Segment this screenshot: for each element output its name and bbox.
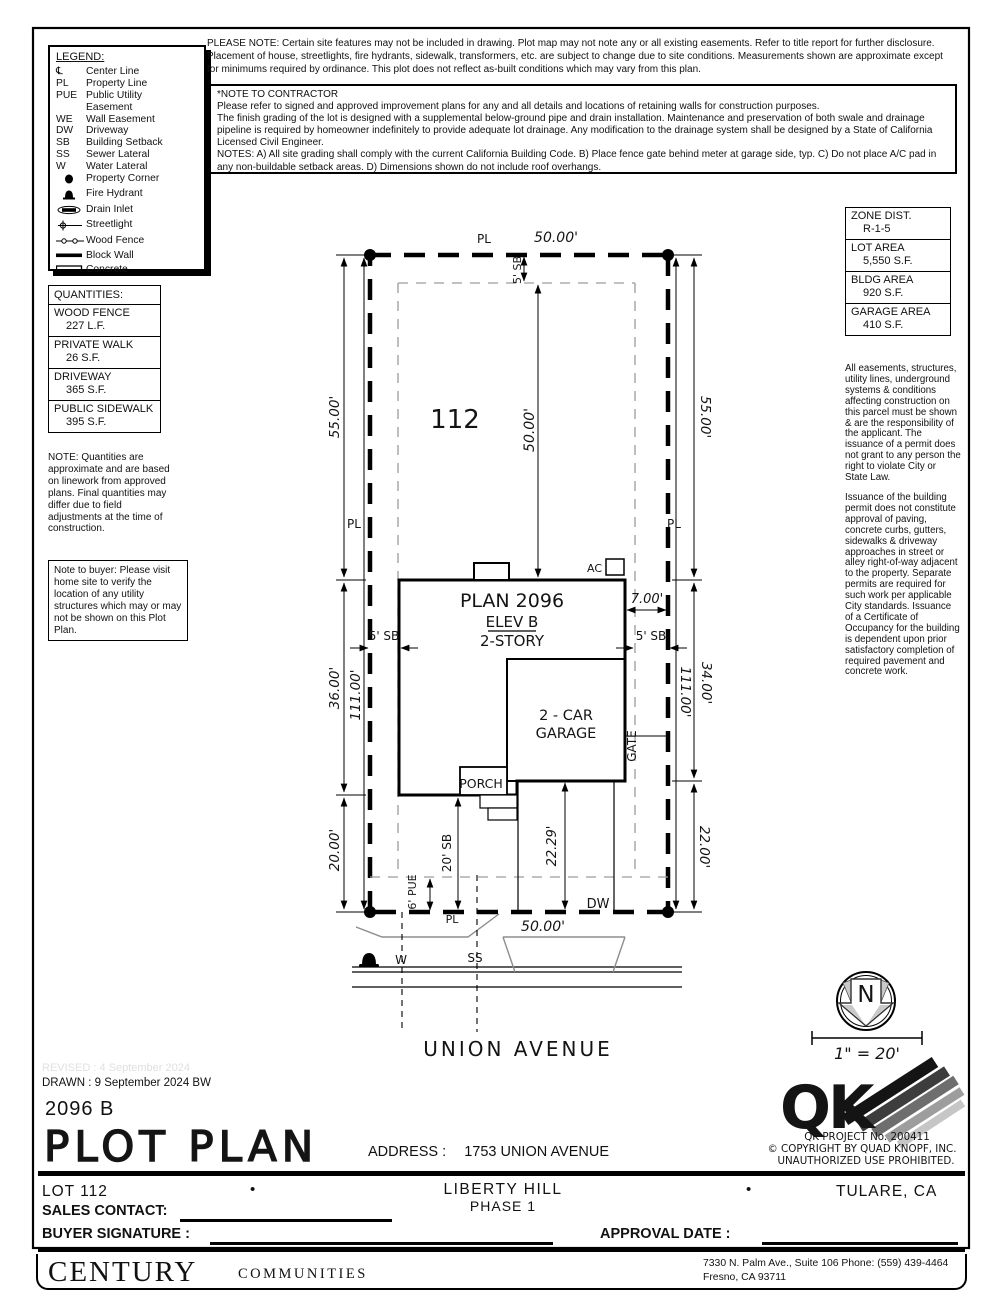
- concrete-icon: [56, 264, 86, 280]
- legend-item-wall-easement: WEWall Easement: [56, 114, 198, 126]
- bullet-separator: •: [250, 1181, 255, 1198]
- legend-item-pue: PUEPublic Utility Easement: [56, 90, 198, 114]
- dim-garage-side: 7.00': [631, 592, 664, 607]
- bullet-separator: •: [746, 1181, 751, 1198]
- centerline-symbol: ℄: [56, 66, 86, 78]
- streetlight-icon: [56, 219, 86, 235]
- dim-left-36: 36.00': [327, 667, 343, 709]
- dim-front-setback: 5' SB: [511, 256, 524, 284]
- community-name: LIBERTY HILL: [418, 1181, 588, 1199]
- water-lateral-label: W: [395, 953, 407, 967]
- dim-right-55: 55.00': [697, 396, 713, 438]
- pl-label-top: PL: [477, 232, 491, 246]
- legend-item-driveway: DWDriveway: [56, 125, 198, 137]
- contractor-note-p1: Please refer to signed and approved impr…: [217, 101, 949, 113]
- sales-contact-line: [180, 1219, 392, 1222]
- garage-label-1: 2 - CAR: [539, 708, 593, 724]
- zone-dist-row: ZONE DIST. R-1-5: [846, 208, 950, 239]
- legend-box: LEGEND: ℄Center Line PLProperty Line PUE…: [48, 45, 206, 271]
- bldg-area-row: BLDG AREA 920 S.F.: [846, 271, 950, 303]
- lot-number: 112: [430, 405, 480, 435]
- legend-item-sewer: SSSewer Lateral: [56, 149, 198, 161]
- dim-drive-len: 22.29': [545, 826, 560, 867]
- qk-project-number: QK PROJECT No. 200411: [804, 1131, 930, 1143]
- dim-left-55: 55.00': [327, 396, 343, 438]
- dim-left-20: 20.00': [327, 829, 343, 871]
- contractor-note-p3: NOTES: A) All site grading shall comply …: [217, 149, 949, 173]
- legend-item-water: WWater Lateral: [56, 161, 198, 173]
- approval-date-label: APPROVAL DATE :: [600, 1226, 731, 1242]
- porch-label: PORCH: [459, 776, 503, 791]
- property-corner-icon: [56, 173, 86, 188]
- dim-sb-rear: 20' SB: [440, 834, 454, 872]
- dw-label: DW: [587, 897, 610, 912]
- house-stories-label: 2-STORY: [480, 632, 545, 650]
- legend-item-setback: SBBuilding Setback: [56, 137, 198, 149]
- fire-hydrant-icon: [359, 953, 379, 967]
- private-walk-row: PRIVATE WALK 26 S.F.: [49, 336, 160, 368]
- lot-label: LOT 112: [42, 1183, 108, 1201]
- driveway-edges: [518, 781, 614, 912]
- builder-name-suffix: COMMUNITIES: [238, 1266, 368, 1283]
- please-note-text: PLEASE NOTE: Certain site features may n…: [207, 38, 954, 77]
- legend-item-property-line: PLProperty Line: [56, 78, 198, 90]
- sewer-lateral-label: SS: [467, 951, 482, 965]
- legend-item-streetlight: Streetlight: [56, 219, 198, 235]
- scale-label: 1" = 20': [834, 1044, 900, 1063]
- dim-right-22: 22.00': [696, 826, 712, 868]
- legend-item-wood-fence: Wood Fence: [56, 235, 198, 250]
- revised-line: REVISED : 4 September 2024: [42, 1062, 190, 1074]
- house-elev-label: ELEV B: [486, 613, 539, 631]
- wood-fence-row: WOOD FENCE 227 L.F.: [49, 304, 160, 336]
- dim-bottom-width: 50.00': [521, 919, 565, 935]
- north-letter: N: [857, 982, 874, 1008]
- quantities-table: QUANTITIES: WOOD FENCE 227 L.F. PRIVATE …: [48, 285, 161, 433]
- builder-address-line2: Fresno, CA 93711: [703, 1271, 948, 1285]
- sheet-title: PLOT PLAN: [44, 1122, 318, 1171]
- legend-item-concrete: Concrete: [56, 264, 198, 280]
- garage-area-row: GARAGE AREA 410 S.F.: [846, 303, 950, 335]
- plan-code: 2096 B: [45, 1098, 114, 1121]
- pl-label-bottom: PL: [446, 913, 460, 926]
- public-sidewalk-row: PUBLIC SIDEWALK 395 S.F.: [49, 400, 160, 432]
- contractor-note-title: *NOTE TO CONTRACTOR: [217, 89, 949, 101]
- entry-step-1: [480, 795, 517, 808]
- legend-item-drain-inlet: Drain Inlet: [56, 204, 198, 219]
- qk-copyright: © COPYRIGHT BY QUAD KNOPF, INC.: [767, 1143, 956, 1155]
- legend-item-fire-hydrant: Fire Hydrant: [56, 188, 198, 204]
- dim-right-34: 34.00': [698, 662, 714, 704]
- dim-sb-right: 5' SB: [636, 629, 667, 643]
- contractor-note-p2: The finish grading of the lot is designe…: [217, 113, 949, 149]
- divider-rule-bottom: [38, 1247, 965, 1252]
- city-label: TULARE, CA: [836, 1183, 937, 1201]
- builder-address: 7330 N. Palm Ave., Suite 106 Phone: (559…: [703, 1257, 948, 1284]
- pl-label-left: PL: [347, 517, 361, 531]
- dim-pue-rear: 6' PUE: [406, 874, 419, 909]
- pl-label-right: PL: [667, 517, 681, 531]
- dim-left-total: 111.00': [348, 670, 364, 721]
- zoning-table: ZONE DIST. R-1-5 LOT AREA 5,550 S.F. BLD…: [845, 207, 951, 336]
- legend-item-property-corner: Property Corner: [56, 173, 198, 188]
- side-notes: All easements, structures, utility lines…: [845, 364, 961, 687]
- quantities-note: NOTE: Quantities are approximate and are…: [48, 452, 176, 535]
- scale-bar: [812, 1031, 922, 1045]
- drain-inlet-icon: [56, 204, 86, 219]
- drawn-line: DRAWN : 9 September 2024 BW: [42, 1077, 211, 1089]
- fire-hydrant-icon: [56, 188, 86, 204]
- dim-front-depth: 50.00': [522, 408, 538, 452]
- builder-address-line1: 7330 N. Palm Ave., Suite 106 Phone: (559…: [703, 1257, 948, 1271]
- buyer-signature-line: [210, 1242, 553, 1245]
- garage-label-2: GARAGE: [536, 726, 597, 742]
- contractor-note-box: *NOTE TO CONTRACTOR Please refer to sign…: [209, 84, 957, 174]
- approval-date-line: [762, 1242, 958, 1245]
- block-wall-icon: [56, 250, 86, 264]
- lot-area-row: LOT AREA 5,550 S.F.: [846, 239, 950, 271]
- north-arrow-icon: N: [837, 972, 895, 1030]
- address-line: ADDRESS : 1753 UNION AVENUE: [368, 1144, 609, 1160]
- builder-name: CENTURY: [48, 1256, 197, 1289]
- ac-label: AC: [587, 562, 602, 575]
- street-name: UNION AVENUE: [423, 1037, 613, 1061]
- house-plan-label: PLAN 2096: [460, 590, 564, 612]
- ac-pad: [606, 559, 624, 575]
- buyer-note-box: Note to buyer: Please visit home site to…: [48, 560, 188, 641]
- legend-item-centerline: ℄Center Line: [56, 66, 198, 78]
- address-label: ADDRESS :: [368, 1144, 446, 1160]
- entry-step-2: [488, 808, 517, 820]
- qk-prohibited: UNAUTHORIZED USE PROHIBITED.: [777, 1155, 954, 1167]
- divider-rule-top: [38, 1171, 965, 1176]
- side-note-permit: Issuance of the building permit does not…: [845, 493, 961, 678]
- sales-contact-label: SALES CONTACT:: [42, 1203, 167, 1219]
- side-note-easements: All easements, structures, utility lines…: [845, 364, 961, 484]
- plot-plan-sheet: 50.00' PL 5' SB 50.00' 55.00' 36.00' 20.…: [0, 0, 1003, 1302]
- gate-label: GATE: [625, 730, 639, 762]
- phase-label: PHASE 1: [418, 1198, 588, 1214]
- legend-item-block-wall: Block Wall: [56, 250, 198, 264]
- dim-right-total: 111.00': [677, 667, 693, 718]
- dim-top-width: 50.00': [534, 230, 578, 246]
- chimney-bump: [474, 563, 509, 580]
- dim-sb-left: 5' SB: [369, 629, 400, 643]
- legend-title: LEGEND:: [56, 52, 198, 64]
- quantities-title: QUANTITIES:: [49, 286, 160, 304]
- wood-fence-icon: [56, 235, 86, 250]
- buyer-signature-label: BUYER SIGNATURE :: [42, 1226, 190, 1242]
- address-value: 1753 UNION AVENUE: [464, 1144, 609, 1160]
- driveway-row: DRIVEWAY 365 S.F.: [49, 368, 160, 400]
